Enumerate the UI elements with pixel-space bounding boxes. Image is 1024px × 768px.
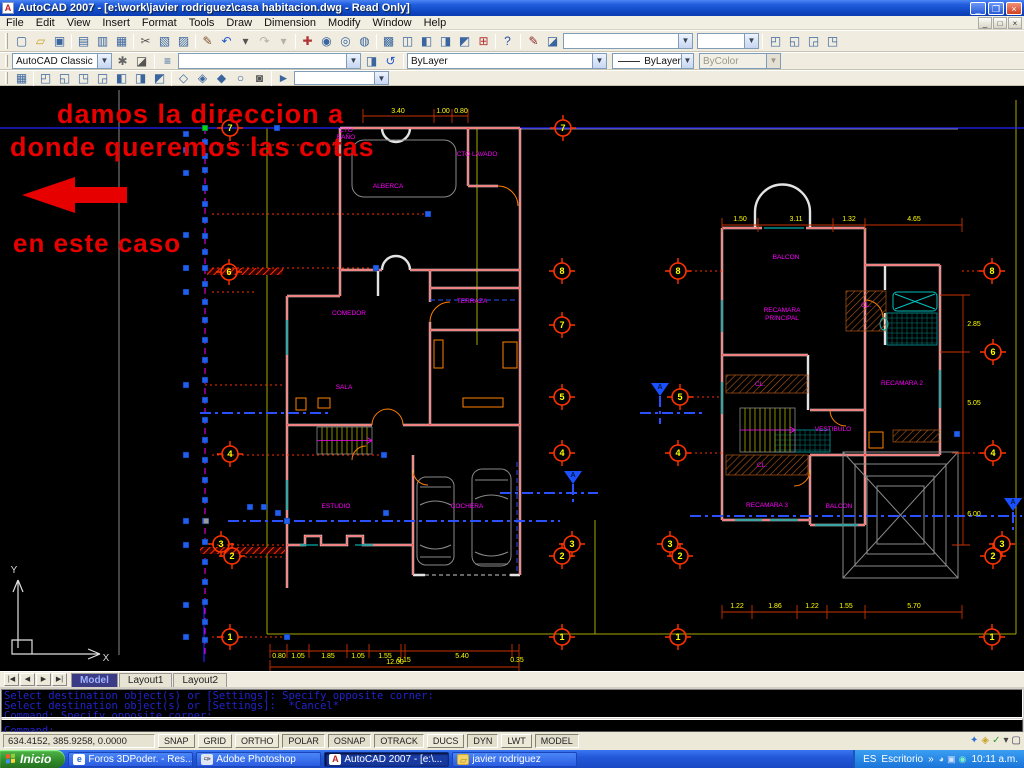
toggle-grid[interactable]: GRID	[198, 734, 233, 748]
room-label: SALA	[336, 384, 353, 391]
plot-preview-icon[interactable]: ▥	[93, 33, 112, 50]
orbit-constrained-icon[interactable]: ◇	[174, 70, 193, 87]
furniture	[869, 432, 883, 448]
toolbar-separator	[133, 34, 134, 49]
section-marker-letter: A	[1010, 499, 1015, 506]
annotation-arrow-left	[22, 177, 127, 213]
task-label: Adobe Photoshop	[216, 754, 296, 765]
dimension-text: 1.05	[291, 653, 305, 660]
stair-direction-arrow	[740, 427, 795, 433]
qnew-icon[interactable]: ▢	[12, 33, 31, 50]
dimension-text: 1.05	[351, 653, 365, 660]
dimension-text: 0.80	[454, 108, 468, 115]
title-bar: A AutoCAD 2007 - [e:\work\javier rodrigu…	[0, 0, 1024, 16]
grip	[202, 457, 208, 463]
grid-bubble-8: 8	[549, 258, 575, 284]
grip-hover	[203, 518, 209, 524]
plot-icon[interactable]: ▤	[74, 33, 93, 50]
ps-icon: ✑	[201, 754, 213, 765]
door-arcs	[352, 186, 883, 486]
properties-toolbar: AutoCAD Classic▼ ✱◪ ≡ ▼ ◨↺ ByLayer▼ ByLa…	[0, 52, 1024, 70]
view-right-icon[interactable]: ◲	[93, 70, 112, 87]
tab-layout1[interactable]: Layout1	[119, 673, 173, 687]
room-label: PRINCIPAL	[765, 315, 799, 322]
toolbar-lock-icon[interactable]: ◈	[981, 734, 989, 748]
tool-palettes-icon[interactable]: ◧	[417, 33, 436, 50]
system-tray: ES Escritorio » ◕▣◉ 10:11 a.m.	[853, 750, 1024, 768]
folder-icon: ▱	[457, 754, 469, 765]
command-line-panel: Select destination object(s) or [Setting…	[0, 687, 1024, 732]
bubble-number: 7	[559, 320, 564, 330]
grip	[202, 167, 208, 173]
toggle-lwt[interactable]: LWT	[501, 734, 531, 748]
grid-bubble-6: 6	[216, 259, 242, 285]
grid-bubble-6: 6	[980, 339, 1006, 365]
doc-restore-button[interactable]: □	[993, 17, 1007, 29]
section-marker-a: A	[651, 383, 669, 396]
grid-bubble-8: 8	[979, 258, 1005, 284]
grip	[202, 299, 208, 305]
quickcalc-icon[interactable]: ⊞	[474, 33, 493, 50]
grip	[202, 249, 208, 255]
grip	[202, 357, 208, 363]
section-marker-a: A	[564, 471, 582, 484]
tab-prev-button[interactable]: ◀	[20, 673, 35, 686]
associated-files-icon[interactable]: ✓	[992, 734, 1000, 748]
furniture	[503, 342, 517, 368]
orbit-reset-icon[interactable]: ○	[231, 70, 250, 87]
bubble-number: 3	[569, 539, 574, 549]
grip	[202, 599, 208, 605]
bathtub	[880, 292, 937, 330]
orbit-continuous-icon[interactable]: ◆	[212, 70, 231, 87]
grip	[183, 518, 189, 524]
menu-modify[interactable]: Modify	[322, 16, 366, 30]
menu-draw[interactable]: Draw	[220, 16, 258, 30]
toggle-dyn[interactable]: DYN	[467, 734, 498, 748]
furniture	[434, 340, 443, 368]
toolbar-separator	[495, 34, 496, 49]
dimension-text: 3.40	[391, 108, 405, 115]
properties-icon[interactable]: ▩	[379, 33, 398, 50]
tab-first-button[interactable]: |◀	[4, 673, 19, 686]
grip	[202, 185, 208, 191]
tray-network-icon[interactable]: ▣	[947, 751, 956, 767]
toolbar-grip[interactable]	[5, 72, 8, 83]
undo-drop-icon[interactable]: ▾	[236, 33, 255, 50]
menu-window[interactable]: Window	[366, 16, 417, 30]
command-history-line: Command: Specify opposite corner:	[4, 711, 1020, 718]
grip	[202, 281, 208, 287]
window-title: AutoCAD 2007 - [e:\work\javier rodriguez…	[18, 2, 966, 14]
linetype-combo[interactable]: ByLayer▼	[612, 53, 694, 69]
dimension-text: 3.11	[789, 216, 802, 223]
dimension-text: 1.32	[842, 216, 856, 223]
plotstyle-combo: ByColor▼	[699, 53, 781, 69]
text-style-icon[interactable]: ✎	[524, 33, 543, 50]
workspace-settings-icon[interactable]: ✱	[113, 53, 132, 70]
grip	[183, 265, 189, 271]
chevron-down-icon[interactable]: ▼	[346, 54, 360, 68]
chevron-down-icon[interactable]: ▼	[97, 54, 111, 68]
bubble-number: 3	[999, 539, 1004, 549]
toolbar-separator	[376, 34, 377, 49]
closet-hatch	[846, 291, 886, 331]
dimension-text: 1.86	[768, 603, 782, 610]
language-indicator[interactable]: ES	[863, 754, 876, 765]
viewport-single-icon[interactable]: ◰	[766, 33, 785, 50]
autocad-window: A AutoCAD 2007 - [e:\work\javier rodrigu…	[0, 0, 1024, 768]
grip	[202, 579, 208, 585]
zoom-window-icon[interactable]: ◎	[336, 33, 355, 50]
bubble-number: 3	[218, 539, 223, 549]
room-label: BALCON	[773, 254, 800, 261]
dimension-text: 0.80	[272, 653, 286, 660]
view-swiso-icon[interactable]: ◩	[150, 70, 169, 87]
grip	[275, 510, 281, 516]
help-icon[interactable]: ?	[498, 33, 517, 50]
grid-bubble-1: 1	[665, 624, 691, 650]
grip	[261, 504, 267, 510]
bubble-number: 8	[989, 266, 994, 276]
room-label: RECAMARA 2	[881, 380, 923, 387]
orbit-free-icon[interactable]: ◈	[193, 70, 212, 87]
room-label: CL.	[757, 462, 767, 469]
tab-last-button[interactable]: ▶|	[52, 673, 67, 686]
show-motion-icon[interactable]: ►	[274, 70, 293, 87]
chevron-down-icon[interactable]: ▼	[744, 34, 758, 48]
coordinates-readout[interactable]: 634.4152, 385.9258, 0.0000	[3, 734, 155, 748]
dimension-text: 5.70	[907, 603, 921, 610]
room-label: COMEDOR	[332, 310, 366, 317]
menu-tools[interactable]: Tools	[183, 16, 221, 30]
taskbar-task[interactable]: ✑Adobe Photoshop	[196, 752, 321, 767]
furniture	[463, 398, 503, 407]
paste-icon[interactable]: ▨	[174, 33, 193, 50]
toggle-ducs[interactable]: DUCS	[427, 734, 465, 748]
tray-msn-icon[interactable]: ◉	[959, 751, 967, 767]
grip	[202, 497, 208, 503]
room-label: ESTUDIO	[322, 503, 351, 510]
dim-style-icon[interactable]: ◪	[543, 33, 562, 50]
dimension-text: 1.50	[733, 216, 747, 223]
grip	[183, 382, 189, 388]
grid-bubble-4: 4	[665, 440, 691, 466]
toggle-otrack[interactable]: OTRACK	[374, 734, 424, 748]
drawing-area[interactable]: 76432178754321854321864321 CTOBAÑOALBERC…	[0, 86, 1024, 671]
task-label: javier rodriguez	[472, 754, 540, 765]
ucs-icon	[12, 580, 100, 659]
bubble-number: 5	[677, 392, 682, 402]
bubble-number: 1	[559, 632, 564, 642]
grip	[183, 542, 189, 548]
autocad-app-icon: A	[2, 2, 14, 14]
grip	[425, 211, 431, 217]
grid-bubble-4: 4	[980, 440, 1006, 466]
view-toolbar: ▦◰◱◳◲◧◨◩◇◈◆○◙► ▼	[0, 70, 1024, 86]
room-label: CTO LAVADO	[457, 151, 498, 158]
zoom-previous-icon[interactable]: ◍	[355, 33, 374, 50]
viewport-join-icon[interactable]: ◲	[804, 33, 823, 50]
menu-bar: FileEditViewInsertFormatToolsDrawDimensi…	[0, 16, 1024, 30]
menu-file[interactable]: File	[0, 16, 30, 30]
section-marker-letter: A	[657, 384, 662, 391]
sheetset-manager-icon[interactable]: ◨	[436, 33, 455, 50]
grid-bubble-1: 1	[979, 624, 1005, 650]
communication-center-icon[interactable]: ✦	[970, 734, 978, 748]
grip	[202, 477, 208, 483]
zoom-realtime-icon[interactable]: ◉	[317, 33, 336, 50]
closet-hatch	[893, 430, 940, 442]
grip	[183, 634, 189, 640]
grip	[202, 417, 208, 423]
dim-style-combo[interactable]: ▼	[697, 33, 759, 49]
grip	[183, 170, 189, 176]
dimension-text: 1.55	[839, 603, 853, 610]
viewport-poly-icon[interactable]: ◱	[785, 33, 804, 50]
markup-manager-icon[interactable]: ◩	[455, 33, 474, 50]
bath-tile-grid	[887, 313, 937, 345]
view-front-icon[interactable]: ◧	[112, 70, 131, 87]
undo-icon[interactable]: ↶	[217, 33, 236, 50]
dimension-text: 1.22	[805, 603, 819, 610]
room-label: CL.	[861, 302, 871, 309]
camera-icon[interactable]: ◙	[250, 70, 269, 87]
windows-taskbar: Inicio eForos 3DPoder. - Res...✑Adobe Ph…	[0, 750, 1024, 768]
bubble-number: 1	[227, 632, 232, 642]
dimension-text: 0.35	[510, 657, 524, 664]
toolbar-separator	[295, 34, 296, 49]
dimension-text: 1.22	[730, 603, 744, 610]
linetype-sample-icon	[618, 61, 640, 62]
furniture	[296, 398, 306, 410]
my-workspace-icon[interactable]: ◪	[132, 53, 151, 70]
view-top-icon[interactable]: ◰	[36, 70, 55, 87]
grid-bubble-4: 4	[217, 441, 243, 467]
annotation-text: donde queremos las cotas	[10, 132, 375, 162]
bubble-number: 3	[667, 539, 672, 549]
grip	[202, 337, 208, 343]
designcenter-icon[interactable]: ◫	[398, 33, 417, 50]
bubble-number: 2	[559, 551, 564, 561]
dimension-text: 5.40	[455, 653, 469, 660]
tab-layout2[interactable]: Layout2	[173, 673, 227, 687]
taskbar-task[interactable]: ▱javier rodriguez	[452, 752, 577, 767]
toggle-ortho[interactable]: ORTHO	[235, 734, 279, 748]
wall-arcs	[382, 128, 810, 270]
room-label: TERRAZA	[457, 298, 488, 305]
grip	[183, 452, 189, 458]
room-label: Y	[11, 565, 18, 576]
chevron-down-icon[interactable]: ▼	[592, 54, 606, 68]
chevron-down-icon: ▼	[766, 54, 780, 68]
toolbar-separator	[33, 71, 34, 86]
bath-tile-floor	[775, 430, 830, 452]
grip	[202, 233, 208, 239]
named-view-combo[interactable]: ▼	[294, 71, 389, 85]
chevron-icon[interactable]: »	[928, 754, 934, 765]
grip	[183, 602, 189, 608]
bath-tile-grid	[775, 430, 830, 452]
bubble-number: 8	[675, 266, 680, 276]
layer-states-icon[interactable]: ◨	[362, 53, 381, 70]
restore-button[interactable]: ❐	[988, 2, 1004, 15]
bubble-number: 2	[990, 551, 995, 561]
tab-model[interactable]: Model	[71, 673, 118, 687]
grip	[202, 637, 208, 643]
menu-format[interactable]: Format	[136, 16, 183, 30]
selected-dimension-line	[0, 128, 1024, 662]
copy-icon[interactable]: ▧	[155, 33, 174, 50]
bubble-number: 1	[675, 632, 680, 642]
dimension-text: 2.85	[967, 321, 981, 328]
chevron-down-icon[interactable]: ▼	[374, 72, 388, 84]
grip	[383, 510, 389, 516]
room-label: ALBERCA	[373, 183, 404, 190]
taskbar-task[interactable]: eForos 3DPoder. - Res...	[68, 752, 193, 767]
bubble-number: 4	[227, 449, 232, 459]
chevron-down-icon[interactable]: ▼	[678, 34, 692, 48]
stair-direction-arrow	[317, 438, 372, 444]
viewport-clip-icon[interactable]: ◳	[823, 33, 842, 50]
grid-bubble-7: 7	[549, 312, 575, 338]
room-label: X	[103, 653, 110, 664]
toggle-snap[interactable]: SNAP	[158, 734, 195, 748]
grip	[284, 518, 290, 524]
cut-icon[interactable]: ✂	[136, 33, 155, 50]
redo-drop-icon: ▾	[274, 33, 293, 50]
bubble-number: 4	[990, 448, 995, 458]
toolbar-grip[interactable]	[5, 33, 8, 49]
grid-bubble-8: 8	[665, 258, 691, 284]
named-views-icon[interactable]: ▦	[12, 70, 31, 87]
bubble-number: 5	[559, 392, 564, 402]
start-button[interactable]: Inicio	[0, 750, 65, 768]
layer-properties-icon[interactable]: ≡	[158, 53, 177, 70]
pan-icon[interactable]: ✚	[298, 33, 317, 50]
room-label: CL.	[755, 381, 765, 388]
text-style-combo[interactable]: ▼	[563, 33, 693, 49]
grip	[202, 317, 208, 323]
tray-volume-icon[interactable]: ◕	[939, 751, 944, 767]
windows	[287, 228, 940, 545]
doc-minimize-button[interactable]: _	[978, 17, 992, 29]
color-combo[interactable]: ByLayer▼	[407, 53, 607, 69]
tab-next-button[interactable]: ▶	[36, 673, 51, 686]
chevron-down-icon[interactable]: ▼	[681, 54, 693, 68]
layout-tabs-bar: |◀ ◀ ▶ ▶| ModelLayout1Layout2	[0, 671, 1024, 687]
publish-icon[interactable]: ▦	[112, 33, 131, 50]
menu-help[interactable]: Help	[418, 16, 453, 30]
standard-toolbar: ▢▱▣▤▥▦✂▧▨✎↶▾↷▾✚◉◎◍▩◫◧◨◩⊞? ✎◪ ▼ ▼ ◰◱◲◳	[0, 30, 1024, 52]
dimension-text: 1.00	[436, 108, 450, 115]
taskbar-task[interactable]: AAutoCAD 2007 - [e:\...	[324, 752, 449, 767]
close-button[interactable]: ×	[1006, 2, 1022, 15]
dimension-text: 6.00	[967, 511, 981, 518]
toolbar-separator	[71, 34, 72, 49]
save-icon[interactable]: ▣	[50, 33, 69, 50]
ie-icon: e	[73, 754, 85, 765]
room-label: RECAMARA 3	[746, 502, 788, 509]
dimension-text: 12.00	[386, 659, 404, 666]
grip	[202, 539, 208, 545]
grip	[202, 619, 208, 625]
desktop-toolbar[interactable]: Escritorio	[881, 754, 923, 765]
grid-bubble-5: 5	[549, 384, 575, 410]
grip	[183, 289, 189, 295]
grip	[247, 504, 253, 510]
layer-combo[interactable]: ▼	[178, 53, 361, 69]
bubble-number: 6	[226, 267, 231, 277]
workspace-combo[interactable]: AutoCAD Classic▼	[12, 53, 112, 69]
open-icon[interactable]: ▱	[31, 33, 50, 50]
grip	[202, 265, 208, 271]
grid-bubble-5: 5	[667, 384, 693, 410]
acad-icon: A	[329, 754, 341, 765]
grip	[183, 232, 189, 238]
grip	[954, 431, 960, 437]
grip	[202, 437, 208, 443]
furniture	[318, 398, 330, 408]
cad-canvas[interactable]: 76432178754321854321864321 CTOBAÑOALBERC…	[0, 86, 1024, 671]
status-bar: 634.4152, 385.9258, 0.0000 SNAPGRIDORTHO…	[0, 732, 1024, 750]
bubble-number: 2	[229, 551, 234, 561]
clock: 10:11 a.m.	[971, 754, 1018, 765]
dimension-text: 4.65	[907, 216, 921, 223]
grid-bubble-1: 1	[549, 624, 575, 650]
match-properties-icon[interactable]: ✎	[198, 33, 217, 50]
doc-close-button[interactable]: ×	[1008, 17, 1022, 29]
bubble-number: 1	[989, 632, 994, 642]
toggle-polar[interactable]: POLAR	[282, 734, 325, 748]
section-marker-letter: A	[570, 472, 575, 479]
toolbar-separator	[271, 71, 272, 86]
selected-hatch	[200, 547, 285, 554]
grip	[381, 452, 387, 458]
grip	[202, 397, 208, 403]
redo-icon: ↷	[255, 33, 274, 50]
bubble-number: 7	[560, 123, 565, 133]
command-history[interactable]: Select destination object(s) or [Setting…	[1, 689, 1023, 718]
menu-dimension[interactable]: Dimension	[258, 16, 322, 30]
layer-previous-icon[interactable]: ↺	[381, 53, 400, 70]
bubble-number: 8	[559, 266, 564, 276]
grip	[284, 634, 290, 640]
minimize-button[interactable]: _	[970, 2, 986, 15]
toggle-osnap[interactable]: OSNAP	[328, 734, 372, 748]
grip	[202, 201, 208, 207]
clean-screen-icon[interactable]: ▢	[1012, 734, 1021, 748]
grip	[202, 217, 208, 223]
menu-insert[interactable]: Insert	[96, 16, 136, 30]
status-tray-arrow-icon[interactable]: ▾	[1004, 734, 1009, 748]
view-bottom-icon[interactable]: ◱	[55, 70, 74, 87]
view-left-icon[interactable]: ◳	[74, 70, 93, 87]
grip	[202, 377, 208, 383]
toggle-model[interactable]: MODEL	[535, 734, 579, 748]
view-back-icon[interactable]: ◨	[131, 70, 150, 87]
neighbor-lot-line	[119, 90, 958, 655]
menu-view[interactable]: View	[61, 16, 97, 30]
annotation-text: en este caso	[13, 228, 181, 258]
grid-bubble-4: 4	[549, 440, 575, 466]
room-label: VESTIBULO	[815, 426, 851, 433]
menu-edit[interactable]: Edit	[30, 16, 61, 30]
toolbar-grip[interactable]	[5, 55, 8, 68]
bubble-number: 4	[559, 448, 564, 458]
grid-bubble-1: 1	[217, 624, 243, 650]
closet-hatch	[726, 375, 808, 393]
